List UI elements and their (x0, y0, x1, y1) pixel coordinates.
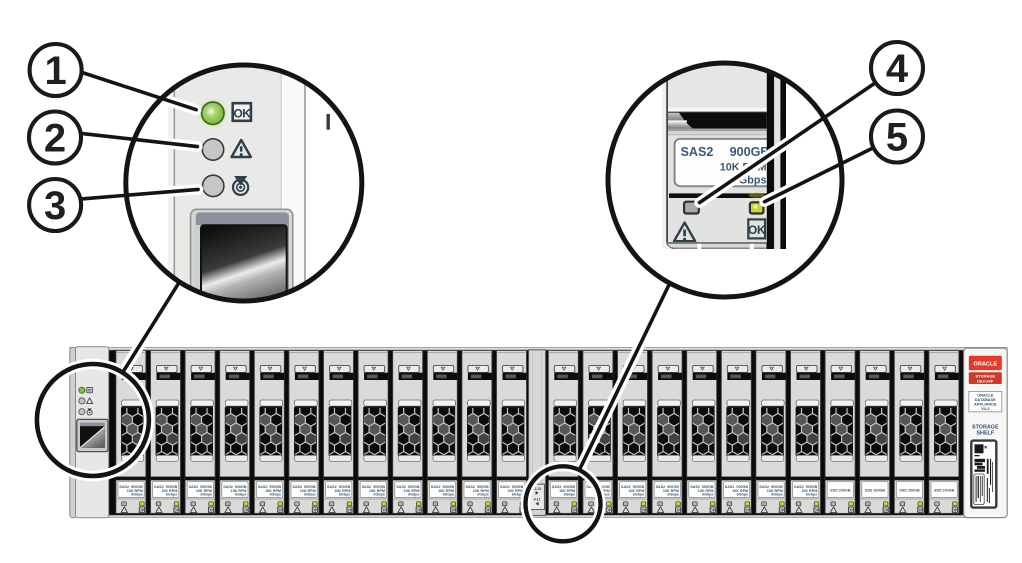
svg-text:X3-2: X3-2 (981, 406, 990, 411)
svg-text:3: 3 (44, 184, 66, 228)
svg-text:ORACLE: ORACLE (973, 362, 997, 368)
svg-text:SAS2: SAS2 (681, 145, 714, 159)
svg-text:OK: OK (748, 223, 766, 237)
svg-text:5: 5 (886, 116, 908, 160)
svg-text:DE2-24P: DE2-24P (977, 378, 994, 383)
svg-text:OK: OK (233, 107, 251, 121)
svg-text:0-11: 0-11 (534, 498, 541, 502)
svg-text:SHELF: SHELF (976, 431, 994, 437)
svg-text:STORAGE: STORAGE (972, 424, 999, 430)
svg-text:2: 2 (44, 117, 66, 161)
svg-text:4: 4 (886, 47, 909, 91)
svg-text:1: 1 (44, 49, 66, 93)
